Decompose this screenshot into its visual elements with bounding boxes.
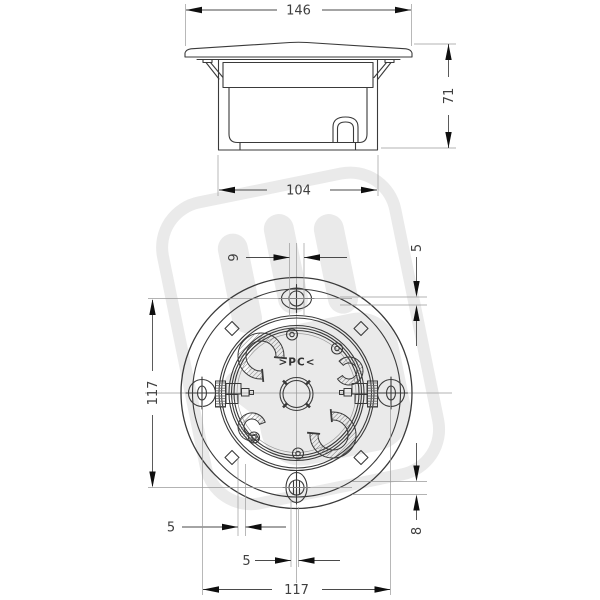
dim-bottom-center-offset: 5 [242,500,340,569]
technical-drawing-page: 146 71 104 [0,0,600,600]
technical-drawing: 146 71 104 [0,0,600,600]
dim-body-width-label: 104 [286,184,311,199]
dim-bolt-spacing-vertical-label: 117 [146,381,161,406]
dim-slot-offset-label: 9 [227,253,242,261]
dim-lid-width: 146 [186,4,412,47]
side-view-lid [185,42,412,59]
dim-bolt-spacing-horizontal-label: 117 [284,583,309,598]
side-view: 146 71 104 [185,4,457,199]
dim-bottom-right-offset: 8 [352,443,427,535]
dim-height-label: 71 [442,88,457,105]
dim-lid-width-label: 146 [286,4,311,19]
dim-bottom-right-offset-label: 8 [410,527,425,535]
side-view-cable-tube [333,117,358,143]
dim-bottom-left-offset-label: 5 [167,521,175,536]
dim-top-right-offset-label: 5 [410,244,425,252]
dim-bottom-center-offset-label: 5 [242,554,250,569]
